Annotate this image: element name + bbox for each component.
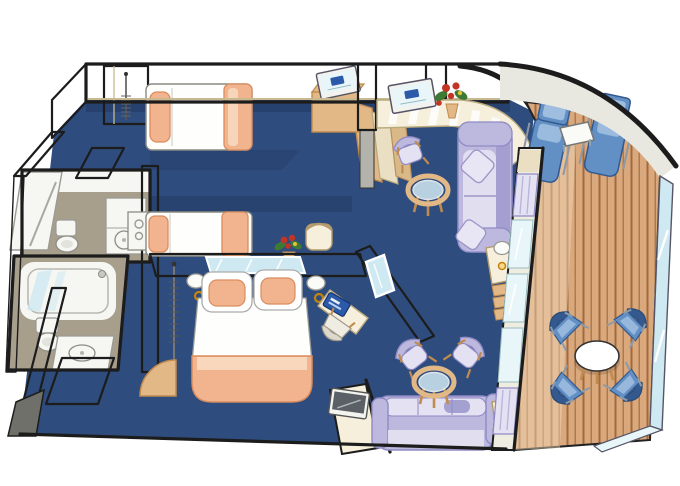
- sofa-living: [454, 122, 512, 252]
- bathroom-tub: [8, 256, 128, 370]
- sofa-armrest: [372, 398, 388, 448]
- twin-bed-forward: [146, 84, 252, 150]
- vanity-stool: [306, 224, 332, 250]
- oval-table: [574, 341, 620, 384]
- flat-tv: [328, 388, 369, 419]
- floorplan-canvas: [0, 0, 680, 486]
- bed-shadow: [146, 196, 352, 212]
- table-lamp: [494, 242, 510, 255]
- twin-bed-master: [146, 212, 252, 256]
- bed-shadow: [150, 150, 300, 170]
- queen-bed: [192, 270, 312, 402]
- tub-faucet: [99, 271, 106, 278]
- washbasin-counter: [52, 336, 114, 370]
- table-knob: [499, 263, 506, 270]
- sofa-back: [496, 132, 510, 244]
- sofa-lounge: [372, 394, 502, 450]
- divider-wall-lower: [360, 130, 374, 188]
- bed-pillow: [149, 216, 168, 252]
- toilet: [56, 220, 78, 252]
- sofa-armrest: [458, 122, 512, 146]
- suite-floorplan: [0, 0, 680, 486]
- curtain-upper: [513, 174, 538, 216]
- bathtub: [20, 262, 116, 320]
- curtain-lower: [493, 388, 518, 434]
